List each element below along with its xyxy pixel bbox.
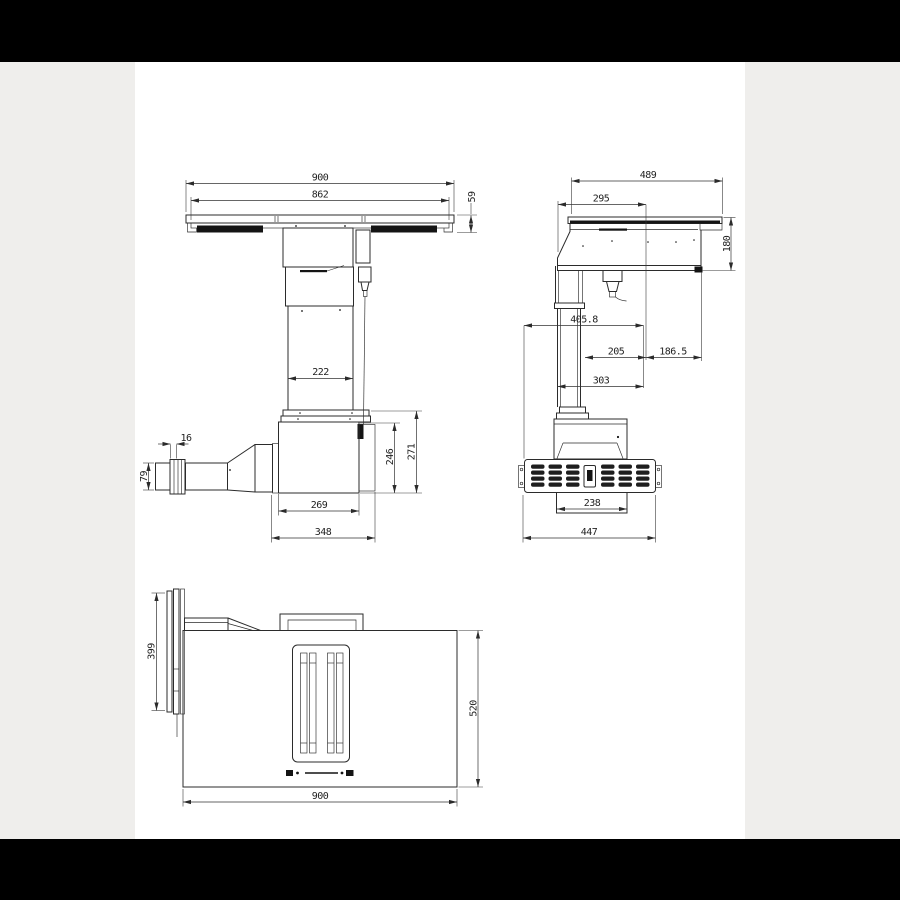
front-hob-zone-left [197, 226, 263, 233]
plan-vent-frame [293, 645, 350, 762]
dim-label-plan-body-depth: 520 [469, 700, 480, 717]
dim-label-side-top-front-depth: 295 [593, 194, 610, 205]
side-glass-underside [570, 221, 720, 224]
page-background: 900 862 59 222 16 [0, 0, 900, 900]
front-cable-connector [358, 424, 364, 439]
side-motor-transition [557, 443, 623, 459]
dim-label-side-column-back-to-front: 303 [593, 376, 610, 387]
front-glass-top [186, 215, 454, 223]
dim-front-motor-box-width: 269 [279, 494, 360, 516]
front-motor-box [279, 422, 360, 493]
dim-side-column-to-front: 205 [585, 347, 646, 358]
dim-front-column-width: 222 [288, 367, 353, 379]
plan-duct [185, 618, 229, 631]
plan-body-outline [183, 631, 457, 788]
dim-label-plan-flange-width: 399 [147, 643, 158, 660]
dim-label-front-glass-width: 862 [312, 190, 329, 201]
plan-flange-plate-mid [174, 589, 180, 714]
front-duct-flange [170, 460, 185, 495]
dim-side-grille-to-front: 405.8 [524, 315, 644, 326]
front-column-foot-plate-2 [281, 416, 371, 422]
side-body-bottom-plate [558, 266, 702, 271]
dim-label-side-column-to-front: 205 [608, 347, 625, 358]
front-edge-hook-left [188, 223, 197, 232]
dim-label-front-column-width: 222 [312, 367, 329, 378]
dim-side-body-height: 180 [702, 218, 736, 271]
side-body-back-chamfer [558, 224, 571, 267]
dim-plan-overall-width: 900 [183, 789, 457, 807]
front-plug-body [359, 267, 372, 282]
dim-front-top-edge-height: 59 [457, 191, 478, 232]
side-grille-louvers-left [531, 465, 580, 487]
dim-side-overall-depth: 489 [572, 170, 723, 214]
dim-label-front-outlet-height: 79 [139, 471, 150, 483]
front-plenum-upper [283, 228, 353, 267]
plan-vent-slots [301, 653, 344, 753]
front-hob-zone-right [371, 226, 437, 233]
front-duct-body [186, 463, 228, 490]
dim-label-side-grille-depth: 447 [581, 527, 598, 538]
front-plenum-lower [286, 267, 354, 306]
dim-label-front-motor-box-width: 269 [311, 500, 328, 511]
dim-label-front-motor-assembly-height: 271 [407, 443, 418, 460]
side-view: 489 295 180 405.8 205 [519, 170, 736, 543]
dim-label-plan-overall-width: 900 [312, 791, 329, 802]
front-cable-box [356, 230, 370, 263]
front-duct-taper [228, 445, 256, 493]
dim-label-front-flange-thickness: 16 [180, 433, 192, 444]
dim-label-side-outlet-box-depth: 238 [584, 498, 601, 509]
side-column-top-plate [555, 303, 585, 309]
dim-label-side-body-height: 180 [722, 235, 733, 252]
dim-plan-body-depth: 520 [459, 631, 484, 788]
dim-side-column-back-to-front: 303 [558, 376, 644, 387]
side-column-foot-plate-1 [560, 407, 586, 413]
front-duct-stub [156, 463, 171, 490]
dim-plan-flange-width: 399 [147, 593, 166, 711]
side-grille-louvers-right [601, 465, 650, 487]
side-grille-tab-left [519, 466, 525, 488]
dim-side-outlet-box-depth: 238 [557, 498, 627, 509]
front-view: 900 862 59 222 16 [139, 173, 478, 543]
front-column-foot-plate-1 [283, 410, 369, 416]
dim-label-front-motor-box-height: 246 [385, 448, 396, 465]
dim-side-front-overhang: 186.5 [646, 347, 702, 358]
front-power-cable [364, 297, 366, 425]
dim-front-outlet-height: 79 [139, 463, 154, 490]
dim-label-side-grille-to-front: 405.8 [570, 315, 598, 326]
plan-view: 399 520 900 [147, 589, 484, 807]
front-duct-transition [255, 445, 273, 493]
dim-front-flange-thickness: 16 [158, 433, 192, 459]
plan-flange-plate-outer [167, 591, 172, 712]
dim-label-front-motor-assembly-width: 348 [315, 527, 332, 538]
front-column [288, 306, 353, 410]
side-plug-body [603, 271, 622, 282]
plan-duct-chamfer [228, 618, 261, 631]
side-motor-box [554, 419, 627, 459]
technical-drawing: 900 862 59 222 16 [0, 0, 900, 900]
plan-control-markings [286, 770, 354, 776]
front-edge-hook-right [444, 223, 453, 232]
dim-label-front-top-edge-height: 59 [467, 191, 478, 203]
side-grille-tab-right [656, 466, 662, 488]
front-damper-blade [300, 270, 327, 272]
side-front-edge-step [700, 224, 722, 231]
side-cable-bend [616, 297, 627, 301]
side-plate-connector [695, 267, 703, 273]
plan-column-outline [280, 614, 363, 631]
dim-label-front-overall-width: 900 [312, 173, 329, 184]
dim-label-side-front-overhang: 186.5 [659, 347, 687, 358]
side-column-foot-plate-2 [557, 413, 589, 419]
dim-label-side-overall-depth: 489 [640, 170, 657, 181]
